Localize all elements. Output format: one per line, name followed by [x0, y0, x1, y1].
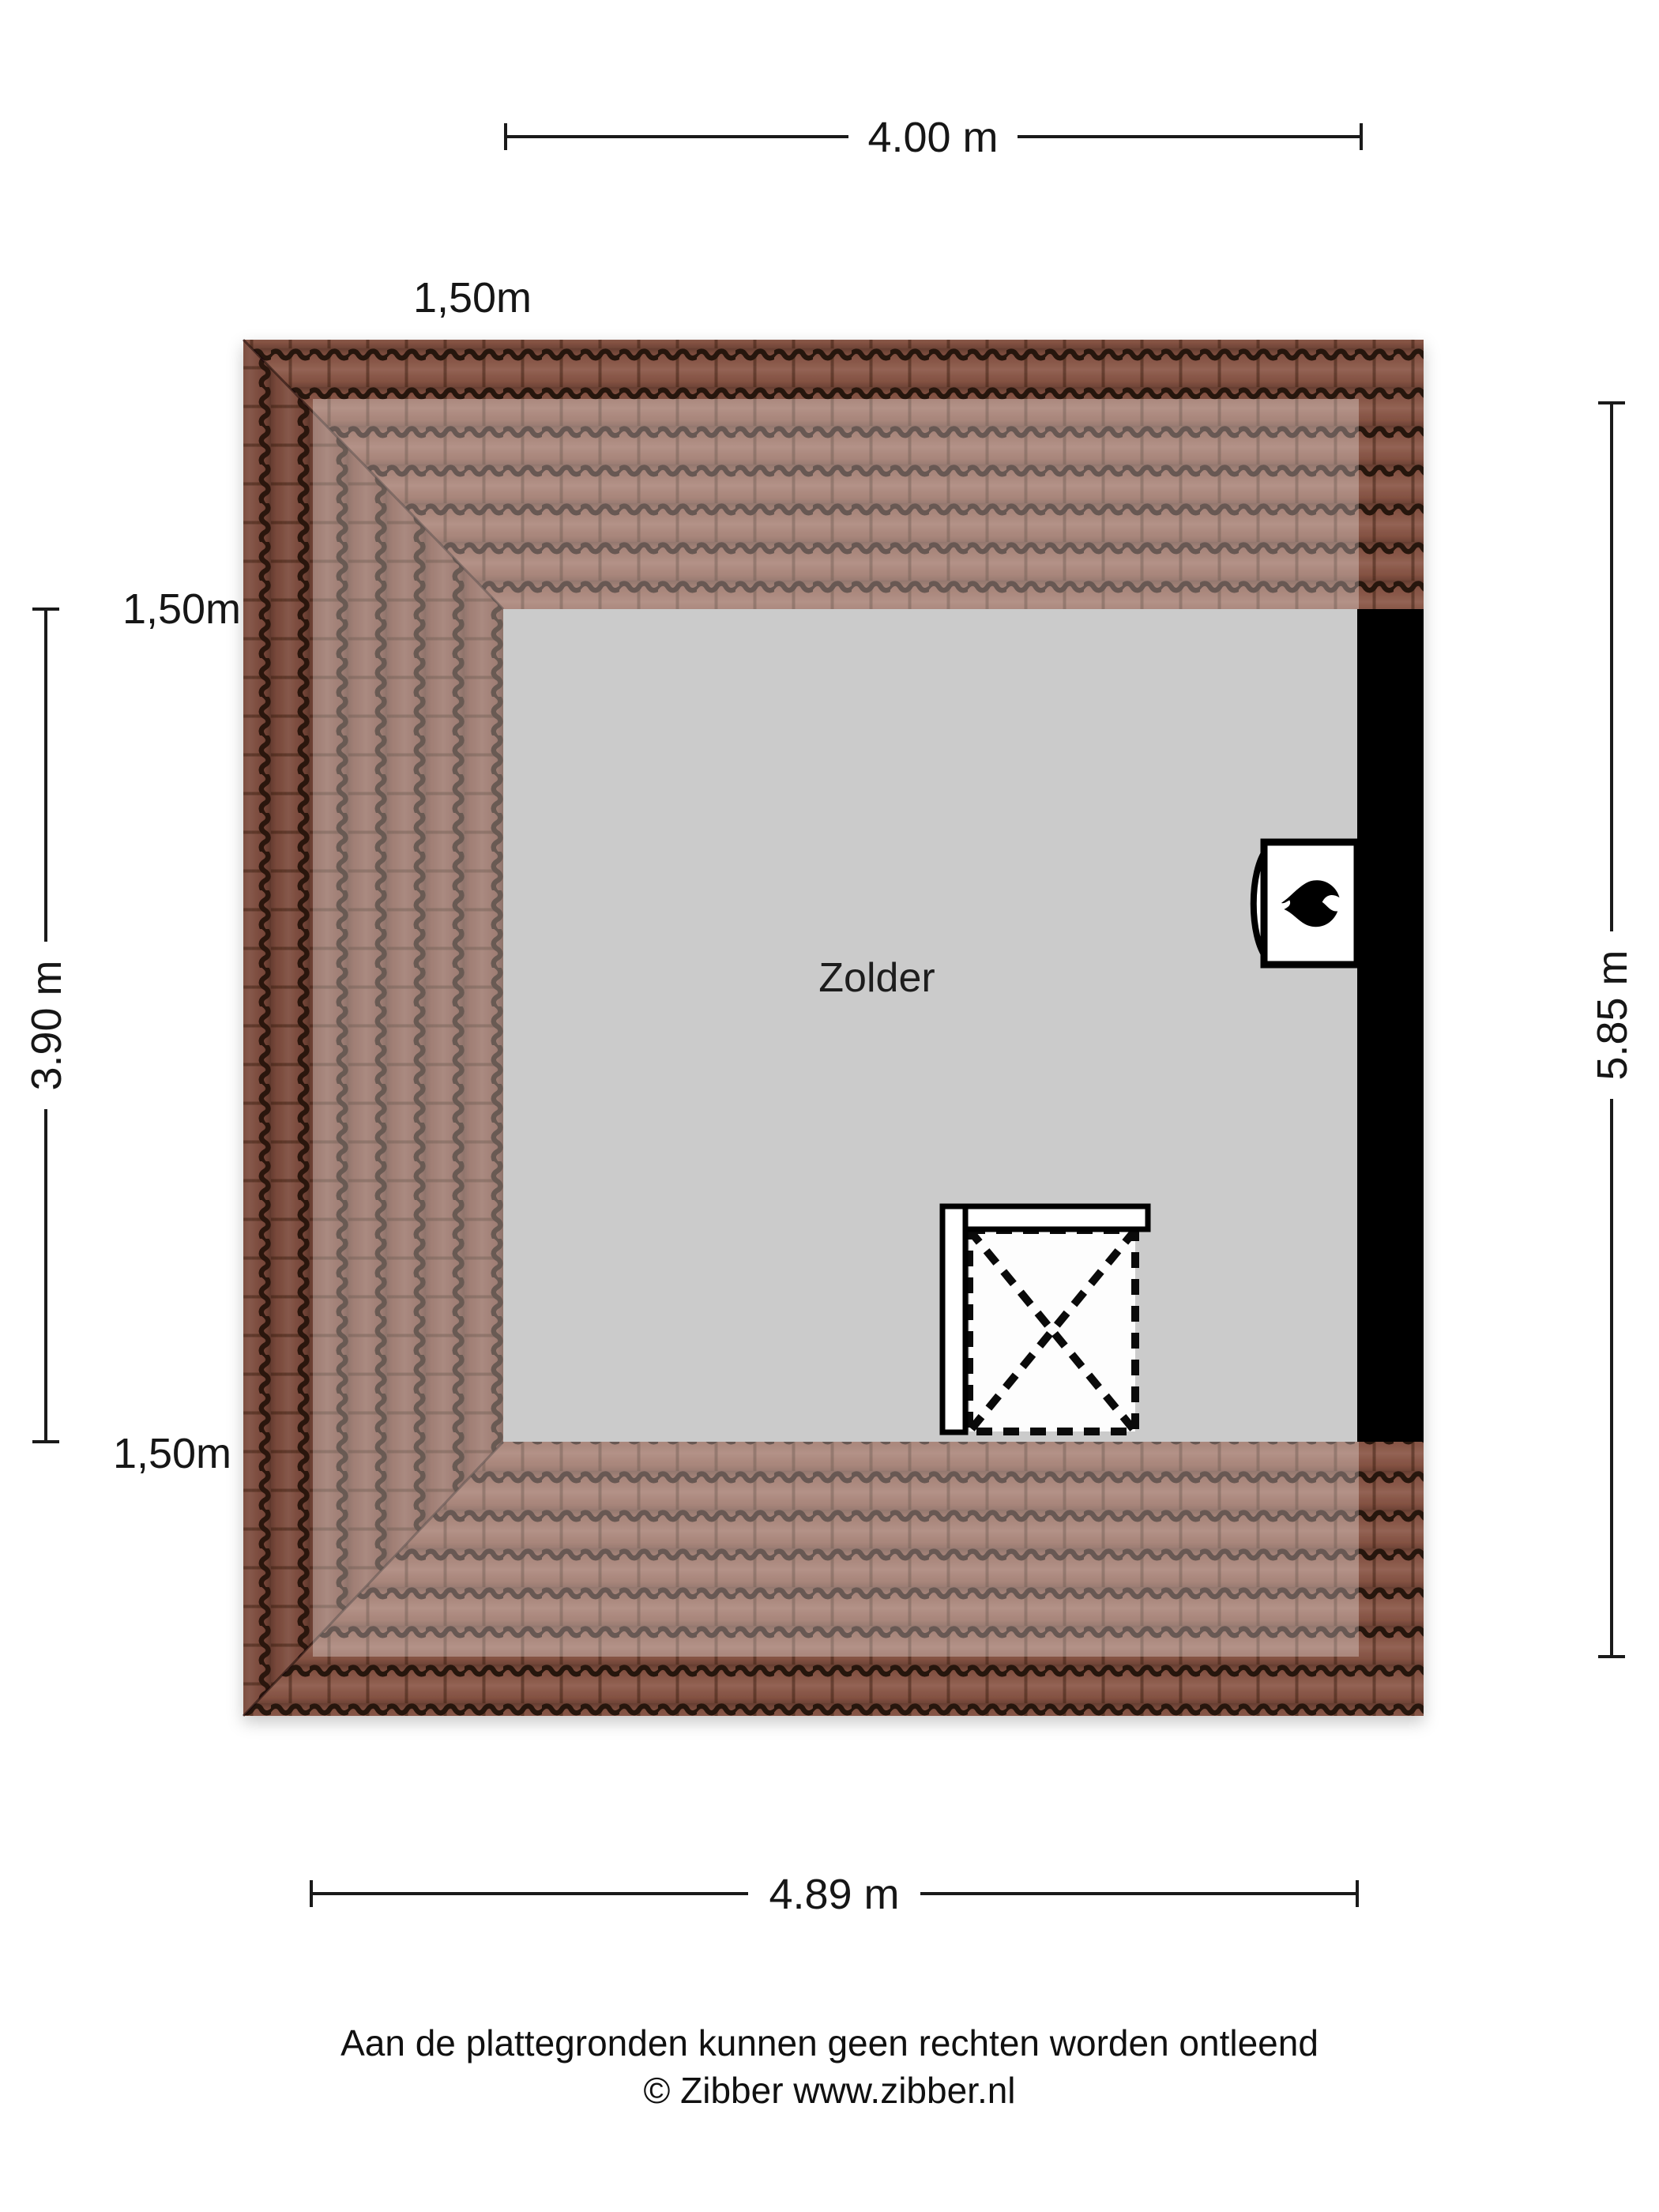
heater-icon — [1254, 842, 1357, 965]
right-wall — [1357, 609, 1424, 1442]
dimension-right-label: 5.85 m — [1589, 950, 1636, 1080]
dimension-bottom: 4.89 m — [311, 1871, 1357, 1918]
height-marker-bottom: 1,50m — [113, 1430, 231, 1477]
dimension-left: 3.90 m — [23, 609, 70, 1442]
attic-plan — [243, 340, 1424, 1716]
dimension-left-label: 3.90 m — [23, 960, 70, 1090]
dimension-bottom-label: 4.89 m — [769, 1871, 899, 1918]
stair-railing-top — [965, 1206, 1148, 1229]
height-marker-left: 1,50m — [122, 585, 241, 633]
room-name: Zolder — [818, 955, 935, 1001]
footer-disclaimer: Aan de plattegronden kunnen geen rechten… — [340, 2022, 1319, 2063]
stair-railing-left — [942, 1206, 965, 1432]
page: Zolder 4.00 m 4.89 m 3.90 m 5.85 m 1,50m… — [0, 0, 1659, 2212]
dimension-top: 4.00 m — [506, 114, 1361, 161]
stair-opening — [942, 1206, 1148, 1432]
dimension-top-label: 4.00 m — [867, 114, 998, 161]
height-marker-top: 1,50m — [413, 274, 532, 322]
floorplan-canvas: Zolder 4.00 m 4.89 m 3.90 m 5.85 m 1,50m… — [0, 0, 1659, 2212]
dimension-right: 5.85 m — [1589, 403, 1636, 1657]
room-floor — [503, 609, 1357, 1442]
footer-copyright: © Zibber www.zibber.nl — [643, 2070, 1015, 2111]
